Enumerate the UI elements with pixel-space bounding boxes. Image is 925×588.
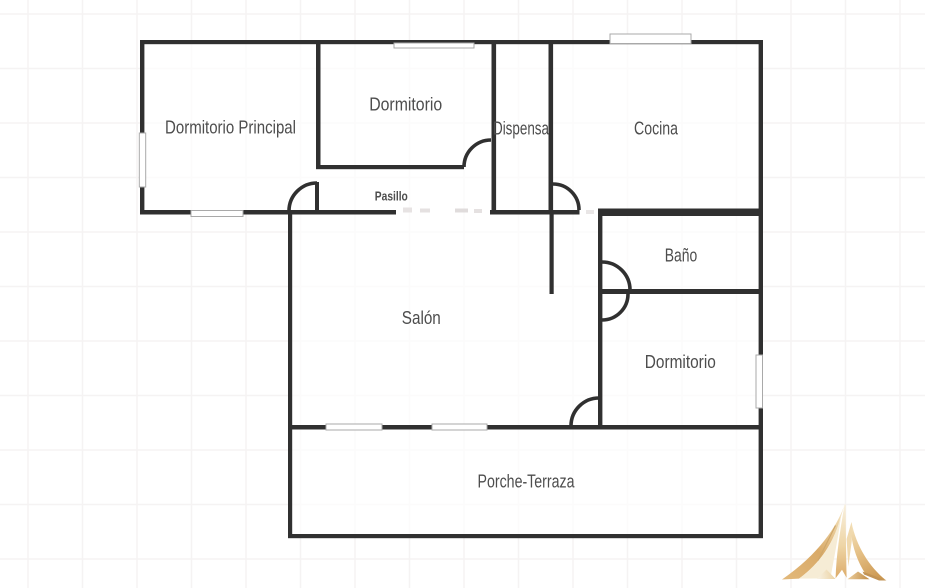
svg-text:Dormitorio Principal: Dormitorio Principal: [165, 118, 296, 138]
svg-text:Dispensa: Dispensa: [493, 119, 550, 139]
svg-text:Dormitorio: Dormitorio: [645, 352, 716, 372]
svg-text:Pasillo: Pasillo: [375, 190, 408, 204]
svg-text:Salón: Salón: [402, 308, 441, 328]
svg-text:Porche-Terraza: Porche-Terraza: [478, 472, 576, 492]
svg-text:Dormitorio: Dormitorio: [369, 95, 442, 115]
svg-text:Baño: Baño: [665, 246, 698, 266]
svg-text:Cocina: Cocina: [634, 119, 679, 139]
